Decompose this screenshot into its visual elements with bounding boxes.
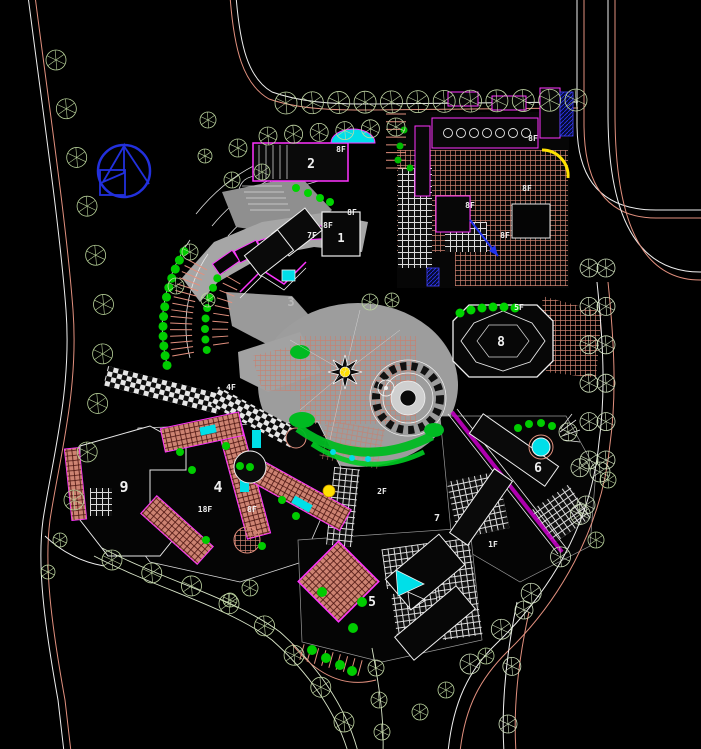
parking-tick bbox=[223, 283, 237, 290]
grid-courtyard bbox=[90, 488, 112, 516]
floor-label: 8F bbox=[247, 505, 257, 514]
tree-icon bbox=[277, 97, 295, 110]
road-northeast-1b bbox=[584, 0, 701, 218]
zone4-bushes bbox=[246, 463, 254, 471]
building-label-1: 1 bbox=[337, 231, 344, 245]
bush-icon bbox=[159, 332, 168, 341]
zone5-bushes bbox=[321, 653, 331, 663]
bush-icon bbox=[171, 265, 180, 274]
bush-icon bbox=[209, 284, 217, 292]
green-blob bbox=[289, 412, 315, 428]
floor-label: 8F bbox=[323, 221, 333, 230]
octagon-bushes bbox=[467, 306, 476, 315]
road-branch bbox=[45, 536, 104, 566]
ne-building-mid bbox=[512, 204, 550, 238]
floor-label: 8F bbox=[347, 208, 357, 217]
parking-tick bbox=[172, 303, 194, 307]
zone4-bushes bbox=[176, 448, 184, 456]
tree-icon bbox=[582, 416, 597, 426]
cyan-dots bbox=[365, 456, 371, 462]
building-label-4: 4 bbox=[213, 478, 222, 496]
ne-parking-bushes bbox=[407, 165, 414, 172]
site-plan-drawing: 1234567898F8F8F7F8F8F8F8F5F18F8F4F2F1F bbox=[0, 0, 701, 749]
cyan-pool-small bbox=[282, 270, 295, 281]
zone4-bushes bbox=[188, 466, 196, 474]
tree-icon bbox=[599, 340, 614, 350]
floor-label: 18F bbox=[198, 505, 213, 514]
tree-icon bbox=[286, 129, 301, 139]
zone4-bushes bbox=[236, 462, 244, 470]
tree-icon bbox=[330, 96, 348, 109]
floor-label: 1F bbox=[488, 540, 498, 549]
parking-tick bbox=[226, 276, 240, 284]
zone5-bushes bbox=[335, 660, 345, 670]
building-label-5: 5 bbox=[368, 595, 376, 610]
floor-label: 8F bbox=[465, 201, 475, 210]
north-arrow-needle bbox=[124, 146, 149, 184]
floor-label: 2F bbox=[377, 487, 387, 496]
cad-site-plan-canvas: 1234567898F8F8F7F8F8F8F8F5F18F8F4F2F1F bbox=[0, 0, 701, 749]
parking-tick bbox=[358, 660, 362, 675]
parking-tick bbox=[215, 306, 231, 310]
ne-building-colonnade bbox=[432, 118, 538, 148]
parking-tick bbox=[213, 343, 229, 345]
tree-icon bbox=[231, 143, 246, 153]
octagon-bushes bbox=[478, 304, 487, 313]
green-blob bbox=[290, 345, 310, 359]
tree-icon bbox=[582, 263, 597, 273]
tree-icon bbox=[303, 96, 321, 109]
tree-icon bbox=[48, 54, 64, 65]
bush-icon bbox=[162, 293, 171, 302]
building-label-3: 3 bbox=[287, 295, 294, 309]
checker-path bbox=[103, 366, 222, 414]
bush-icon bbox=[159, 341, 168, 350]
parking-tick bbox=[213, 313, 229, 315]
building-2 bbox=[253, 143, 348, 181]
ne-parking-bushes bbox=[397, 143, 404, 150]
tree-icon bbox=[69, 152, 85, 163]
floor-label: 5F bbox=[514, 303, 524, 312]
green-blob bbox=[424, 423, 444, 437]
zone5-bushes bbox=[317, 587, 327, 597]
round-plaza-hatched bbox=[234, 527, 260, 553]
zone4-bushes bbox=[278, 496, 286, 504]
bush-icon bbox=[201, 325, 209, 333]
floor-label: 7F bbox=[307, 231, 317, 240]
road-northeast-2 bbox=[608, 0, 701, 272]
parking-tick bbox=[171, 341, 193, 343]
tree-icon bbox=[89, 398, 105, 409]
tree-icon bbox=[312, 127, 327, 137]
floor-label: 8F bbox=[522, 184, 532, 193]
tree-icon bbox=[356, 96, 374, 109]
zone6-bushes bbox=[537, 419, 545, 427]
road-west-center bbox=[35, 0, 74, 749]
zone4-bushes bbox=[222, 442, 230, 450]
floor-label: 4F bbox=[226, 383, 236, 392]
yellow-feature bbox=[323, 485, 335, 497]
bush-icon bbox=[163, 361, 172, 370]
zone5-bushes bbox=[348, 623, 358, 633]
octagon-bushes bbox=[456, 309, 465, 318]
parking-tick bbox=[171, 310, 193, 313]
parking-tick bbox=[170, 335, 192, 336]
bush-icon bbox=[159, 322, 168, 331]
blue-hatched-block bbox=[427, 268, 439, 286]
ne-parking-bushes bbox=[395, 157, 402, 164]
zone6-bushes bbox=[525, 420, 533, 428]
building-label-8: 8 bbox=[497, 335, 505, 350]
tree-icon bbox=[58, 103, 74, 114]
road-north-edge bbox=[230, 0, 578, 110]
tree-icon bbox=[382, 96, 400, 109]
tree-icon bbox=[363, 124, 378, 134]
parking-tick bbox=[171, 347, 193, 350]
bush-icon bbox=[159, 312, 168, 321]
building-label-7: 7 bbox=[434, 513, 440, 524]
parking-tick bbox=[212, 321, 228, 322]
tree-icon bbox=[599, 301, 614, 311]
parking-tick bbox=[212, 336, 228, 337]
tree-icon bbox=[409, 95, 427, 108]
parking-tick bbox=[171, 316, 193, 318]
bush-icon bbox=[203, 346, 211, 354]
floor-label: 8F bbox=[528, 134, 538, 143]
building-label-2: 2 bbox=[307, 157, 315, 172]
floor-label: 8F bbox=[336, 145, 346, 154]
parking-tick bbox=[172, 352, 194, 356]
cyan-strip bbox=[252, 430, 261, 448]
zone5-bushes bbox=[307, 645, 317, 655]
bushes-below-building2 bbox=[304, 189, 312, 197]
floor-label: 8F bbox=[500, 231, 510, 240]
amphitheater-core bbox=[400, 390, 416, 406]
road-north-center bbox=[236, 0, 578, 104]
bush-icon bbox=[161, 351, 170, 360]
tree-icon bbox=[87, 249, 103, 260]
building-label-6: 6 bbox=[534, 461, 542, 476]
zone6-bushes bbox=[514, 424, 522, 432]
zone4-bushes bbox=[258, 542, 266, 550]
road-northeast-2b bbox=[615, 0, 701, 280]
survey-dot bbox=[384, 386, 388, 390]
ne-parking-bushes bbox=[401, 127, 408, 134]
tree-icon bbox=[94, 348, 110, 359]
tree-icon bbox=[599, 263, 614, 273]
zone6-bushes bbox=[548, 422, 556, 430]
tree-icon bbox=[95, 299, 111, 310]
bushes-below-building2 bbox=[292, 184, 300, 192]
zone4-bushes bbox=[202, 536, 210, 544]
zone5-bushes bbox=[347, 666, 357, 676]
octagon-bushes bbox=[500, 303, 509, 312]
ne-building-bar bbox=[415, 126, 430, 196]
bush-icon bbox=[213, 274, 221, 282]
bush-icon bbox=[201, 336, 209, 344]
road-northeast-1 bbox=[577, 0, 701, 210]
octagon-bushes bbox=[489, 303, 498, 312]
bush-icon bbox=[175, 256, 184, 265]
bushes-below-building2 bbox=[326, 198, 334, 206]
tree-icon bbox=[261, 131, 276, 141]
road-south-fork-b bbox=[515, 612, 529, 749]
tree-icon bbox=[582, 378, 597, 388]
bush-icon bbox=[202, 314, 210, 322]
zone5-bushes bbox=[357, 597, 367, 607]
blue-hatched-block bbox=[560, 92, 573, 136]
tree-icon bbox=[599, 378, 614, 388]
bush-icon bbox=[180, 247, 189, 256]
bush-icon bbox=[203, 304, 211, 312]
parking-tick bbox=[170, 323, 192, 324]
tree-icon bbox=[79, 200, 95, 211]
bush-icon bbox=[160, 302, 169, 311]
cyan-dots bbox=[349, 455, 355, 461]
zone4-bushes bbox=[292, 512, 300, 520]
building-label-9: 9 bbox=[119, 478, 128, 496]
bushes-below-building2 bbox=[316, 194, 324, 202]
parking-tick bbox=[174, 297, 195, 302]
tree-icon bbox=[336, 716, 352, 727]
pool-6 bbox=[532, 438, 550, 456]
ne-building-tower bbox=[540, 88, 560, 138]
cyan-dots bbox=[330, 449, 336, 455]
